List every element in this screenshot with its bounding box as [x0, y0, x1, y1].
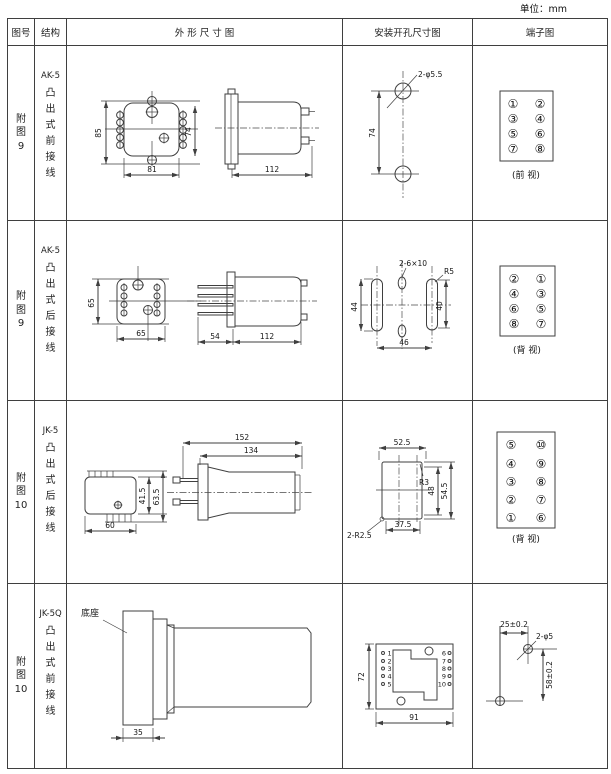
model-label: AK-5 [41, 70, 60, 82]
header-terminal: 端子图 [473, 19, 607, 46]
svg-text:1: 1 [388, 650, 392, 658]
hole-spec-label: 2-φ5 [536, 632, 553, 641]
row4-terminal-drawing: 25±0.2 2-φ5 58±0.2 [473, 584, 607, 768]
jk5q-panel-drill-diagram: 25±0.2 2-φ5 58±0.2 [473, 584, 606, 767]
svg-text:⑤: ⑤ [506, 438, 517, 452]
header-structure: 结构 [35, 19, 67, 46]
header-mounting: 安装开孔尺寸图 [343, 19, 473, 46]
view-label: (背 视) [512, 533, 540, 545]
svg-text:6: 6 [442, 650, 446, 658]
svg-text:⑦: ⑦ [508, 142, 519, 156]
row2-outline-drawing: 65 65 [67, 221, 343, 401]
svg-text:⑤: ⑤ [508, 127, 519, 141]
model-label: JK-5 [43, 425, 59, 437]
dim-52-5: 52.5 [394, 438, 411, 447]
side-view: 112 [215, 89, 319, 178]
svg-text:⑤: ⑤ [536, 302, 547, 316]
svg-text:④: ④ [506, 457, 517, 471]
radius-label: R5 [444, 267, 454, 276]
row4-fig-no: 附 图 10 [8, 584, 35, 768]
jk5q-mounting-diagram: 1 2 3 4 5 6 7 8 9 10 72 [343, 584, 472, 767]
svg-text:⑥: ⑥ [509, 302, 520, 316]
dim-44: 44 [350, 302, 359, 312]
svg-text:①: ① [506, 511, 517, 525]
row3-terminal-drawing: ⑤ ⑩ ④ ⑨ ③ ⑧ ② ⑦ ① ⑥ (背 视) [473, 401, 607, 584]
terminal-bolt-top [173, 477, 198, 483]
svg-text:⑧: ⑧ [509, 317, 520, 331]
document-page: 单位：mm 图号 结构 外 形 尺 寸 图 安装开孔尺寸图 端子图 附 图 9 … [0, 0, 611, 774]
row2-mounting-drawing: 2-6×10 R5 44 40 46 [343, 221, 473, 401]
svg-text:①: ① [508, 97, 519, 111]
unit-label: 单位：mm [520, 1, 567, 15]
jk5-mounting-diagram: 52.5 R3 48 54.5 37.5 2-R2.5 [343, 401, 472, 583]
ak5-front-terminal-diagram: ① ② ③ ④ ⑤ ⑥ ⑦ ⑧ (前 视) [473, 46, 606, 220]
svg-text:⑩: ⑩ [536, 438, 547, 452]
dim-63-5: 63.5 [152, 488, 161, 505]
ak5-rear-mounting-diagram: 2-6×10 R5 44 40 46 [343, 221, 472, 400]
svg-text:⑨: ⑨ [536, 457, 547, 471]
ak5-rear-terminal-diagram: ② ① ④ ③ ⑥ ⑤ ⑧ ⑦ (背 视) [473, 221, 606, 400]
dim-74: 74 [368, 128, 377, 138]
dim-46: 46 [399, 338, 409, 347]
ak5-front-outline-diagram: 85 74 81 [67, 46, 342, 220]
row1-outline-drawing: 85 74 81 [67, 46, 343, 221]
dim-54-5: 54.5 [440, 482, 449, 499]
ak5-front-mounting-diagram: 2-φ5.5 74 [343, 46, 472, 220]
row2-terminal-drawing: ② ① ④ ③ ⑥ ⑤ ⑧ ⑦ (背 视) [473, 221, 607, 401]
dim-60: 60 [105, 521, 115, 530]
jk5-terminal-diagram: ⑤ ⑩ ④ ⑨ ③ ⑧ ② ⑦ ① ⑥ (背 视) [473, 401, 606, 583]
row3-outline-drawing: 41.5 63.5 60 152 134 [67, 401, 343, 584]
dim-74: 74 [184, 127, 193, 137]
view-label: (前 视) [512, 169, 540, 181]
row1-fig-no: 附 图 9 [8, 46, 35, 221]
dim-85: 85 [94, 128, 103, 138]
view-label: (背 视) [513, 344, 541, 356]
dim-54: 54 [210, 332, 220, 341]
ak5-rear-outline-diagram: 65 65 [67, 221, 342, 400]
spec-table: 图号 结构 外 形 尺 寸 图 安装开孔尺寸图 端子图 附 图 9 AK-5 凸… [7, 18, 608, 769]
jk5q-outline-diagram: 底座 35 [67, 584, 342, 767]
row3-structure: JK-5 凸 出 式 后 接 线 [35, 401, 67, 584]
dim-134: 134 [244, 446, 259, 455]
dim-91: 91 [409, 713, 419, 722]
front-view: 85 74 81 [94, 91, 200, 178]
row1-mounting-drawing: 2-φ5.5 74 [343, 46, 473, 221]
svg-text:②: ② [509, 272, 520, 286]
svg-text:⑦: ⑦ [536, 317, 547, 331]
dim-35: 35 [133, 728, 143, 737]
row4-mounting-drawing: 1 2 3 4 5 6 7 8 9 10 72 [343, 584, 473, 768]
model-label: JK-5Q [39, 608, 61, 620]
dim-25: 25±0.2 [500, 620, 528, 629]
front-view: 41.5 63.5 60 [85, 471, 167, 534]
corner-radius-label: 2-R2.5 [347, 531, 372, 540]
left-terminal-pins: 1 2 3 4 5 [382, 650, 392, 689]
row4-outline-drawing: 底座 35 [67, 584, 343, 768]
dim-58: 58±0.2 [545, 661, 554, 689]
svg-text:⑦: ⑦ [536, 493, 547, 507]
terminal-bolt-bottom [173, 499, 198, 505]
dim-65-bottom: 65 [136, 329, 146, 338]
side-view: 54 112 [187, 272, 317, 345]
jk5-outline-diagram: 41.5 63.5 60 152 134 [67, 401, 342, 583]
dim-112: 112 [260, 332, 275, 341]
dim-48: 48 [427, 486, 436, 496]
slot-spec-label: 2-6×10 [399, 259, 427, 268]
front-view: 65 65 [87, 266, 201, 342]
header-outline: 外 形 尺 寸 图 [67, 19, 343, 46]
row3-fig-no: 附 图 10 [8, 401, 35, 584]
svg-text:②: ② [506, 493, 517, 507]
svg-text:10: 10 [438, 681, 446, 689]
dim-41-5: 41.5 [138, 487, 147, 504]
dim-65-left: 65 [87, 298, 96, 308]
svg-text:9: 9 [442, 673, 446, 681]
row2-fig-no: 附 图 9 [8, 221, 35, 401]
model-label: AK-5 [41, 245, 60, 257]
dim-81: 81 [147, 165, 157, 174]
svg-text:⑥: ⑥ [535, 127, 546, 141]
dim-72: 72 [357, 672, 366, 682]
row2-structure: AK-5 凸 出 式 后 接 线 [35, 221, 67, 401]
svg-text:⑧: ⑧ [535, 142, 546, 156]
svg-text:⑧: ⑧ [536, 475, 547, 489]
dim-152: 152 [235, 433, 250, 442]
dim-37-5: 37.5 [395, 520, 412, 529]
svg-text:⑥: ⑥ [536, 511, 547, 525]
dim-112: 112 [265, 165, 280, 174]
radius-label-r3: R3 [419, 478, 429, 487]
header-fig-no: 图号 [8, 19, 35, 46]
row1-terminal-drawing: ① ② ③ ④ ⑤ ⑥ ⑦ ⑧ (前 视) [473, 46, 607, 221]
row3-mounting-drawing: 52.5 R3 48 54.5 37.5 2-R2.5 [343, 401, 473, 584]
svg-text:③: ③ [536, 287, 547, 301]
row1-structure: AK-5 凸 出 式 前 接 线 [35, 46, 67, 221]
hole-spec-label: 2-φ5.5 [418, 70, 443, 79]
svg-text:②: ② [535, 97, 546, 111]
terminal-screw-stack-left [117, 110, 124, 149]
svg-text:5: 5 [388, 681, 392, 689]
row4-structure: JK-5Q 凸 出 式 前 接 线 [35, 584, 67, 768]
base-label: 底座 [81, 607, 99, 619]
svg-text:④: ④ [509, 287, 520, 301]
dim-40: 40 [435, 301, 444, 311]
svg-text:③: ③ [508, 112, 519, 126]
svg-text:④: ④ [535, 112, 546, 126]
right-terminal-pins: 6 7 8 9 10 [438, 650, 451, 689]
side-view: 152 134 [167, 433, 312, 520]
svg-text:③: ③ [506, 475, 517, 489]
svg-text:①: ① [536, 272, 547, 286]
svg-text:4: 4 [388, 673, 392, 681]
